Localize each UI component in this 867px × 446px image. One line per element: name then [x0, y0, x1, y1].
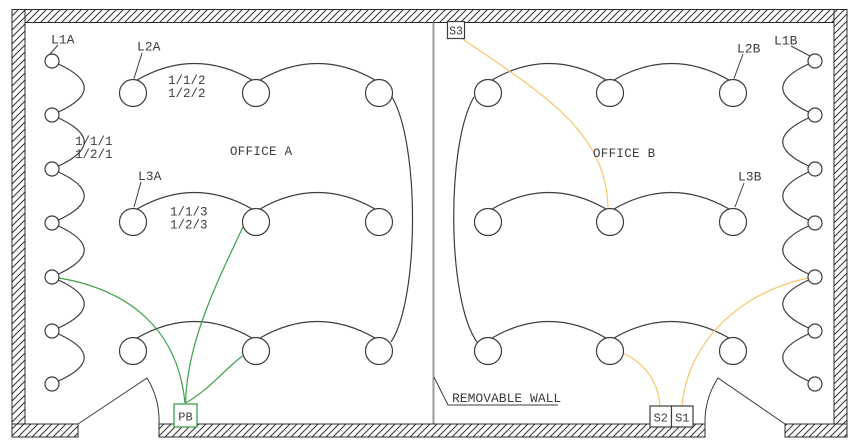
- light-fixture: [597, 209, 624, 236]
- light-fixture: [243, 80, 270, 107]
- circuit-label-1-1-3: 1/1/3: [170, 206, 208, 220]
- floor-plan-drawing: L1A L2A L3A L2B L1B L3B OFFICE A OFFICE …: [0, 0, 867, 446]
- light-fixture: [45, 216, 59, 230]
- label-l1a: L1A: [51, 33, 75, 48]
- light-fixture: [243, 209, 270, 236]
- light-fixture: [720, 338, 747, 365]
- wall-top: [12, 10, 847, 23]
- light-fixture: [597, 338, 624, 365]
- wall-bottom-left-segment: [12, 424, 78, 437]
- wall-left: [12, 10, 25, 438]
- light-fixture: [366, 338, 393, 365]
- light-fixture: [45, 162, 59, 176]
- label-l2a: L2A: [137, 40, 161, 55]
- light-fixture: [808, 270, 822, 284]
- label-l1b: L1B: [774, 34, 798, 49]
- circuit-label-1-2-1: 1/2/1: [75, 148, 113, 162]
- circuit-label-1-1-1: 1/1/1: [75, 135, 113, 149]
- light-fixture: [808, 377, 822, 391]
- light-fixture: [808, 324, 822, 338]
- floor-plan-canvas: L1A L2A L3A L2B L1B L3B OFFICE A OFFICE …: [0, 0, 867, 446]
- circuit-label-1-1-2: 1/1/2: [168, 74, 206, 88]
- light-fixture: [45, 54, 59, 68]
- circuit-label-1-2-2: 1/2/2: [168, 87, 206, 101]
- wall-bottom-right-segment: [785, 424, 847, 437]
- light-fixture: [720, 209, 747, 236]
- light-fixture: [45, 377, 59, 391]
- light-fixture: [808, 54, 822, 68]
- light-fixture: [808, 108, 822, 122]
- push-button-pb-label: PB: [178, 411, 192, 425]
- switch-s2-label: S2: [654, 412, 668, 426]
- label-removable-wall: REMOVABLE WALL: [452, 391, 561, 406]
- light-fixture: [597, 80, 624, 107]
- label-office-b: OFFICE B: [593, 147, 656, 161]
- light-fixture: [45, 270, 59, 284]
- light-fixture: [366, 209, 393, 236]
- light-fixture: [808, 216, 822, 230]
- light-fixture: [120, 209, 147, 236]
- wall-right: [834, 10, 847, 438]
- label-l3b: L3B: [738, 170, 762, 185]
- light-fixture: [475, 338, 502, 365]
- light-fixture: [45, 324, 59, 338]
- light-fixture: [120, 338, 147, 365]
- light-fixture: [808, 162, 822, 176]
- label-l2b: L2B: [737, 42, 761, 57]
- label-l3a: L3A: [138, 169, 162, 184]
- light-fixture: [243, 338, 270, 365]
- label-office-a: OFFICE A: [230, 145, 293, 159]
- light-fixture: [475, 80, 502, 107]
- circuit-label-1-2-3: 1/2/3: [170, 219, 208, 233]
- wall-bottom-middle-segment: [159, 424, 705, 437]
- switch-s1-label: S1: [675, 412, 689, 426]
- light-fixture: [120, 80, 147, 107]
- light-fixture: [366, 80, 393, 107]
- light-fixture: [720, 80, 747, 107]
- switch-s3-label: S3: [449, 26, 463, 39]
- light-fixture: [45, 108, 59, 122]
- light-fixture: [475, 209, 502, 236]
